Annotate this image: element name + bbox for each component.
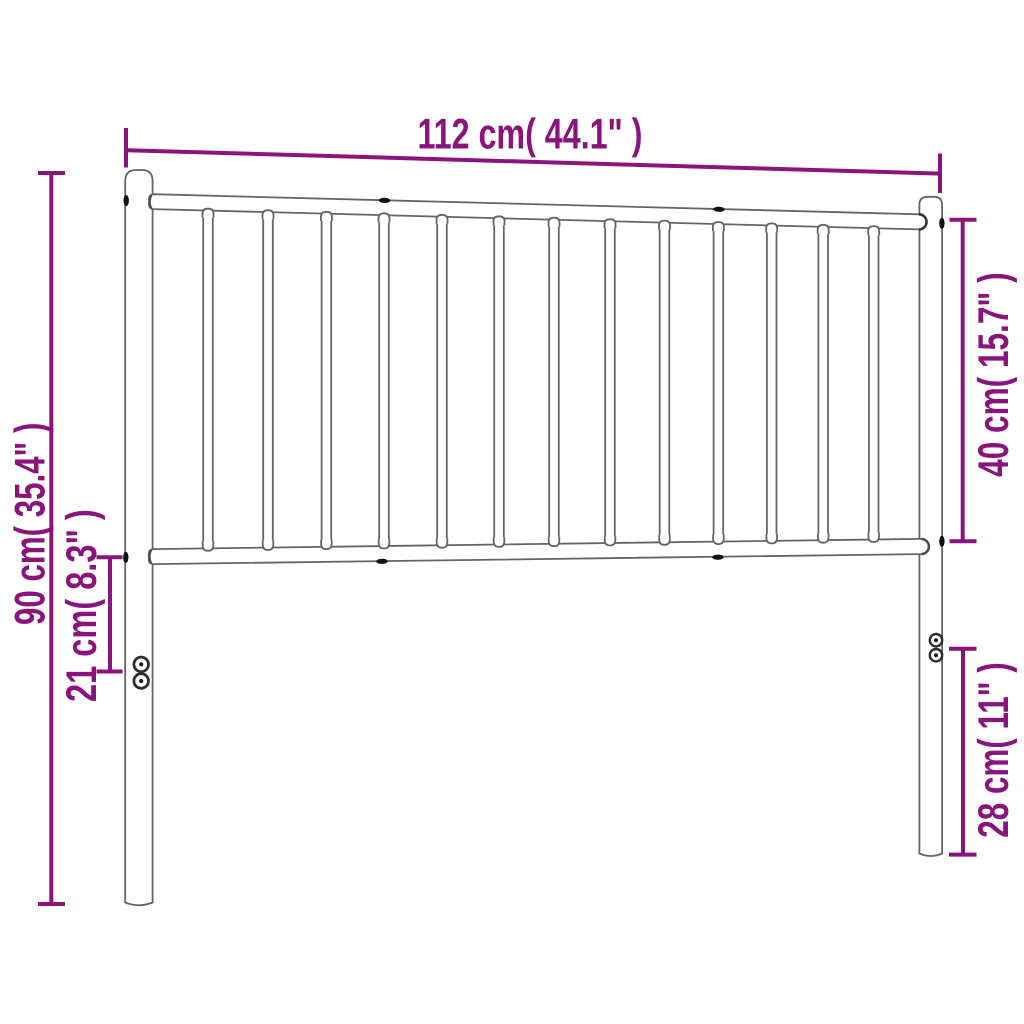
svg-text:21 cm( 8.3" ): 21 cm( 8.3" ): [58, 509, 106, 702]
svg-text:28 cm( 11" ): 28 cm( 11" ): [970, 662, 1018, 837]
svg-text:90 cm( 35.4" ): 90 cm( 35.4" ): [7, 423, 55, 625]
svg-text:40 cm( 15.7" ): 40 cm( 15.7" ): [970, 272, 1018, 477]
svg-text:112 cm( 44.1" ): 112 cm( 44.1" ): [418, 111, 643, 159]
